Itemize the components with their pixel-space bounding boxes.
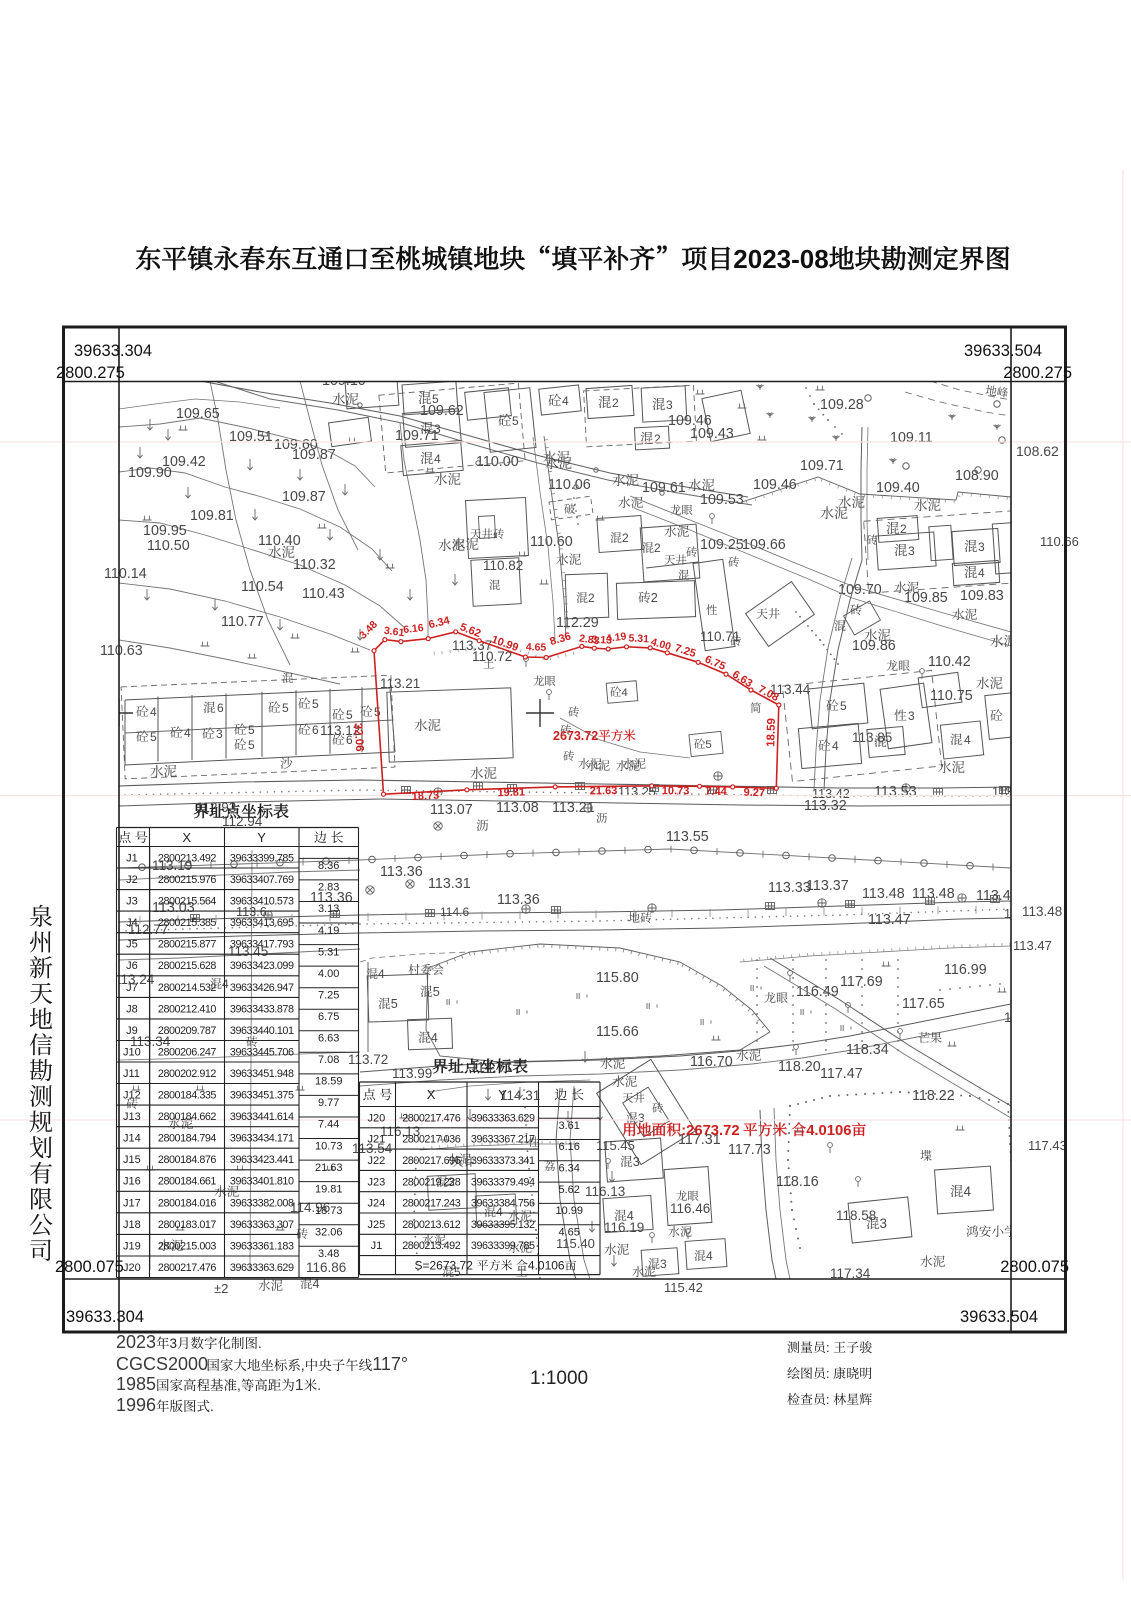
svg-text:113.36: 113.36 bbox=[497, 892, 540, 908]
svg-text:4: 4 bbox=[222, 977, 229, 991]
svg-text:18.59: 18.59 bbox=[765, 718, 778, 747]
svg-text:4: 4 bbox=[978, 566, 985, 580]
svg-text:J9: J9 bbox=[126, 1025, 138, 1037]
svg-text:39633363.629: 39633363.629 bbox=[230, 1262, 294, 1274]
svg-text:4: 4 bbox=[706, 1249, 713, 1263]
svg-text:4: 4 bbox=[964, 1184, 972, 1199]
svg-text:113.31: 113.31 bbox=[428, 876, 471, 892]
svg-text:115.66: 115.66 bbox=[596, 1024, 639, 1040]
svg-text:7.44: 7.44 bbox=[318, 1119, 339, 1131]
svg-text:110.63: 110.63 bbox=[100, 643, 143, 659]
svg-text:110.77: 110.77 bbox=[221, 614, 264, 630]
svg-text:4.0106: 4.0106 bbox=[528, 1259, 565, 1273]
svg-text:32.06: 32.06 bbox=[315, 1227, 343, 1239]
svg-text:J18: J18 bbox=[123, 1219, 141, 1231]
svg-text:10.73: 10.73 bbox=[662, 785, 690, 797]
svg-text:5: 5 bbox=[512, 414, 519, 428]
svg-text:2800183.017: 2800183.017 bbox=[158, 1219, 217, 1231]
svg-text:Y: Y bbox=[257, 830, 266, 845]
svg-text:117.47: 117.47 bbox=[820, 1066, 863, 1082]
svg-text:,: , bbox=[237, 1378, 241, 1393]
svg-text:3.61: 3.61 bbox=[559, 1120, 580, 1132]
svg-text:5: 5 bbox=[391, 997, 398, 1011]
svg-text:2800184.661: 2800184.661 bbox=[158, 1176, 217, 1188]
svg-text:39633407.769: 39633407.769 bbox=[230, 874, 294, 886]
svg-text:J4: J4 bbox=[126, 917, 138, 929]
svg-text:4: 4 bbox=[964, 733, 971, 747]
svg-text:3: 3 bbox=[216, 727, 223, 741]
svg-text:39633440.101: 39633440.101 bbox=[230, 1025, 294, 1037]
svg-text:21.63: 21.63 bbox=[590, 785, 618, 797]
svg-text:2800184.335: 2800184.335 bbox=[158, 1090, 217, 1102]
svg-text:39633423.441: 39633423.441 bbox=[230, 1154, 294, 1166]
svg-text::2673.72: :2673.72 bbox=[681, 1123, 739, 1139]
svg-text:110.60: 110.60 bbox=[530, 534, 573, 550]
svg-text:4.65: 4.65 bbox=[559, 1226, 580, 1238]
svg-text:2800213.612: 2800213.612 bbox=[402, 1219, 461, 1231]
svg-text:113.07: 113.07 bbox=[430, 802, 473, 818]
svg-text:J19: J19 bbox=[123, 1240, 141, 1252]
svg-text:109.66: 109.66 bbox=[742, 537, 786, 553]
svg-text:39633.504: 39633.504 bbox=[964, 342, 1042, 360]
svg-text:4: 4 bbox=[150, 705, 157, 719]
svg-text:110.75: 110.75 bbox=[930, 688, 973, 704]
svg-text:2800215.385: 2800215.385 bbox=[158, 917, 217, 929]
svg-text:39633433.878: 39633433.878 bbox=[230, 1003, 294, 1015]
svg-text:117°: 117° bbox=[372, 1354, 408, 1374]
svg-text:6.16: 6.16 bbox=[403, 622, 425, 636]
svg-text:2800217.696: 2800217.696 bbox=[402, 1155, 461, 1167]
svg-text:2800184.876: 2800184.876 bbox=[158, 1154, 217, 1166]
svg-text:J21: J21 bbox=[368, 1134, 386, 1146]
svg-text:6.75: 6.75 bbox=[318, 1011, 339, 1023]
svg-text:2800202.912: 2800202.912 bbox=[158, 1068, 217, 1080]
svg-text:1985: 1985 bbox=[116, 1374, 156, 1394]
svg-text:J6: J6 bbox=[126, 960, 138, 972]
svg-text:109.28: 109.28 bbox=[820, 397, 864, 413]
svg-text:39633367.217: 39633367.217 bbox=[471, 1134, 535, 1146]
svg-text:2800217.476: 2800217.476 bbox=[158, 1262, 217, 1274]
svg-text:113.48: 113.48 bbox=[1022, 904, 1062, 919]
svg-text:.: . bbox=[210, 1399, 214, 1414]
svg-text:2673.72: 2673.72 bbox=[553, 729, 598, 743]
svg-text:10.99: 10.99 bbox=[556, 1205, 584, 1217]
svg-text:39633413.695: 39633413.695 bbox=[230, 917, 294, 929]
svg-text:113.47: 113.47 bbox=[1013, 938, 1052, 953]
svg-text:113.32: 113.32 bbox=[804, 798, 847, 814]
svg-text:5: 5 bbox=[312, 697, 319, 711]
svg-text:2: 2 bbox=[654, 541, 661, 555]
svg-text::: : bbox=[826, 1366, 830, 1381]
svg-text:39633434.171: 39633434.171 bbox=[230, 1133, 294, 1145]
svg-text:113.37: 113.37 bbox=[806, 878, 849, 894]
svg-text:3: 3 bbox=[660, 1257, 667, 1271]
svg-text:39633451.948: 39633451.948 bbox=[230, 1068, 294, 1080]
svg-text:4.65: 4.65 bbox=[526, 641, 547, 653]
svg-text:113.72: 113.72 bbox=[348, 1052, 388, 1067]
svg-text:J11: J11 bbox=[123, 1068, 140, 1080]
svg-text:2800213.492: 2800213.492 bbox=[402, 1240, 461, 1252]
svg-text:X: X bbox=[182, 830, 191, 845]
svg-text:5: 5 bbox=[433, 985, 440, 999]
svg-text:J20: J20 bbox=[123, 1262, 141, 1274]
svg-text:39633417.793: 39633417.793 bbox=[230, 939, 294, 951]
svg-text::: : bbox=[826, 1340, 830, 1355]
svg-text:118.20: 118.20 bbox=[778, 1059, 821, 1075]
svg-text:3: 3 bbox=[170, 1336, 178, 1351]
svg-text:110.66: 110.66 bbox=[1040, 534, 1079, 549]
svg-text:2: 2 bbox=[588, 591, 595, 605]
svg-text:J1: J1 bbox=[126, 853, 138, 865]
svg-text:5: 5 bbox=[282, 701, 289, 715]
svg-text:39633426.947: 39633426.947 bbox=[230, 982, 294, 994]
svg-text:9.27: 9.27 bbox=[743, 787, 765, 800]
svg-text:3: 3 bbox=[978, 540, 985, 554]
svg-text:J22: J22 bbox=[368, 1155, 386, 1167]
svg-text:116.4: 116.4 bbox=[1004, 1010, 1037, 1025]
svg-text:5: 5 bbox=[346, 708, 353, 722]
svg-text:J2: J2 bbox=[126, 874, 138, 886]
svg-text:5: 5 bbox=[248, 723, 255, 737]
svg-text:115.42: 115.42 bbox=[664, 1280, 703, 1295]
svg-text:1996: 1996 bbox=[116, 1395, 156, 1415]
svg-text:3: 3 bbox=[880, 1216, 888, 1231]
svg-text:J25: J25 bbox=[368, 1219, 386, 1231]
svg-text:114.6: 114.6 bbox=[440, 905, 469, 919]
svg-text:113.36: 113.36 bbox=[380, 864, 423, 880]
svg-text:J15: J15 bbox=[123, 1154, 141, 1166]
svg-text:7.08: 7.08 bbox=[318, 1054, 339, 1066]
svg-text:109.95: 109.95 bbox=[143, 523, 187, 539]
svg-text:110.14: 110.14 bbox=[104, 566, 147, 582]
svg-text:5: 5 bbox=[705, 739, 711, 751]
svg-text:J14: J14 bbox=[123, 1133, 141, 1145]
svg-text:110.32: 110.32 bbox=[293, 557, 336, 573]
svg-text:9.77: 9.77 bbox=[318, 1097, 339, 1109]
svg-text::: : bbox=[826, 1392, 830, 1407]
svg-text:4.00: 4.00 bbox=[649, 636, 672, 653]
svg-text:5: 5 bbox=[248, 738, 255, 752]
svg-text:109.46: 109.46 bbox=[753, 477, 797, 493]
svg-text:6.63: 6.63 bbox=[730, 669, 755, 691]
svg-text:32.06: 32.06 bbox=[351, 723, 365, 753]
svg-text:116.70: 116.70 bbox=[690, 1054, 733, 1070]
svg-text:19.81: 19.81 bbox=[315, 1183, 343, 1195]
svg-text:18.59: 18.59 bbox=[315, 1076, 343, 1088]
svg-text:2800215.976: 2800215.976 bbox=[158, 874, 217, 886]
svg-text:4.0106: 4.0106 bbox=[806, 1123, 851, 1139]
svg-text:109.90: 109.90 bbox=[128, 465, 172, 481]
svg-text:2800217.036: 2800217.036 bbox=[402, 1134, 461, 1146]
svg-text:109.40: 109.40 bbox=[876, 480, 920, 496]
svg-text:109.60: 109.60 bbox=[274, 437, 318, 453]
svg-text:112.29: 112.29 bbox=[556, 615, 599, 631]
svg-text:39633382.008: 39633382.008 bbox=[230, 1197, 294, 1209]
svg-text:3: 3 bbox=[908, 544, 915, 558]
svg-text:118.58: 118.58 bbox=[836, 1208, 876, 1223]
svg-text:113.08: 113.08 bbox=[496, 800, 539, 816]
svg-text:J12: J12 bbox=[123, 1090, 141, 1102]
svg-text:2800215.564: 2800215.564 bbox=[158, 896, 217, 908]
svg-text:116.13: 116.13 bbox=[585, 1184, 625, 1199]
svg-text:113.55: 113.55 bbox=[666, 829, 709, 845]
svg-text:J20: J20 bbox=[368, 1112, 386, 1124]
svg-text:5: 5 bbox=[840, 699, 847, 713]
svg-text:116.99: 116.99 bbox=[944, 962, 987, 978]
svg-text:110.43: 110.43 bbox=[302, 586, 345, 602]
svg-text:2800184.794: 2800184.794 bbox=[158, 1133, 217, 1145]
svg-text:6.16: 6.16 bbox=[559, 1141, 580, 1153]
svg-text:2800215.003: 2800215.003 bbox=[158, 1240, 217, 1252]
svg-text:5.31: 5.31 bbox=[318, 946, 339, 958]
svg-text:8.36: 8.36 bbox=[549, 630, 573, 648]
svg-text:108.62: 108.62 bbox=[1016, 443, 1059, 459]
svg-text:7.25: 7.25 bbox=[673, 642, 697, 660]
svg-text:110.82: 110.82 bbox=[483, 558, 523, 573]
svg-text:2800.275: 2800.275 bbox=[56, 364, 125, 382]
svg-text:J5: J5 bbox=[126, 939, 138, 951]
svg-text:2800217.243: 2800217.243 bbox=[402, 1198, 461, 1210]
svg-text:109.70: 109.70 bbox=[838, 582, 882, 598]
svg-text:39633423.099: 39633423.099 bbox=[230, 960, 294, 972]
svg-text:2800.075: 2800.075 bbox=[55, 1258, 124, 1276]
svg-text:2800206.247: 2800206.247 bbox=[158, 1046, 217, 1058]
svg-text:J10: J10 bbox=[123, 1046, 141, 1058]
svg-text:2.83: 2.83 bbox=[318, 882, 339, 894]
svg-text:2800184.662: 2800184.662 bbox=[158, 1111, 217, 1123]
svg-text:J17: J17 bbox=[123, 1197, 141, 1209]
svg-text:39633451.375: 39633451.375 bbox=[230, 1090, 294, 1102]
svg-text:.: . bbox=[317, 1378, 321, 1393]
svg-text:7.44: 7.44 bbox=[705, 786, 728, 798]
svg-text:1:1000: 1:1000 bbox=[530, 1368, 588, 1389]
svg-text:4: 4 bbox=[434, 452, 441, 466]
svg-text:39633399.785: 39633399.785 bbox=[230, 853, 294, 865]
svg-text:J16: J16 bbox=[123, 1176, 141, 1188]
svg-text:4: 4 bbox=[621, 687, 627, 699]
svg-text:J8: J8 bbox=[126, 1003, 138, 1015]
svg-text:39633.504: 39633.504 bbox=[960, 1308, 1038, 1326]
svg-text:118.34: 118.34 bbox=[846, 1042, 889, 1058]
svg-text:2800215.877: 2800215.877 bbox=[158, 939, 217, 951]
svg-text:113.48: 113.48 bbox=[862, 886, 905, 902]
svg-text:2800215.628: 2800215.628 bbox=[158, 960, 217, 972]
svg-text:116.86: 116.86 bbox=[306, 1260, 346, 1275]
svg-text:CGCS2000: CGCS2000 bbox=[116, 1354, 208, 1374]
svg-text:113.33: 113.33 bbox=[768, 880, 811, 896]
svg-text:6.63: 6.63 bbox=[318, 1033, 339, 1045]
svg-text:J24: J24 bbox=[368, 1198, 386, 1210]
svg-text:109.86: 109.86 bbox=[852, 638, 896, 654]
svg-text:109.53: 109.53 bbox=[700, 492, 744, 508]
svg-text:115.80: 115.80 bbox=[596, 970, 639, 986]
svg-text:39633.304: 39633.304 bbox=[74, 342, 152, 360]
svg-text:2800209.787: 2800209.787 bbox=[158, 1025, 217, 1037]
svg-text:113.53: 113.53 bbox=[874, 784, 917, 800]
svg-text:39633395.132: 39633395.132 bbox=[471, 1219, 535, 1231]
svg-text:2023-08: 2023-08 bbox=[733, 244, 828, 274]
svg-text:3: 3 bbox=[633, 1155, 640, 1169]
svg-text:108.90: 108.90 bbox=[955, 468, 999, 484]
svg-text:±2: ±2 bbox=[214, 1281, 228, 1296]
svg-text:110.06: 110.06 bbox=[548, 477, 591, 493]
svg-text:110.40: 110.40 bbox=[258, 533, 301, 549]
svg-text:3: 3 bbox=[908, 709, 915, 723]
svg-text:Y: Y bbox=[498, 1087, 507, 1102]
svg-text:4: 4 bbox=[184, 726, 191, 740]
svg-text:4: 4 bbox=[431, 1031, 438, 1045]
svg-text:113.99: 113.99 bbox=[392, 1066, 432, 1081]
svg-text:117.43: 117.43 bbox=[1028, 1138, 1067, 1153]
svg-text:116.19: 116.19 bbox=[604, 1220, 644, 1235]
svg-text:10.73: 10.73 bbox=[315, 1140, 343, 1152]
svg-text:3.48: 3.48 bbox=[318, 1248, 339, 1260]
svg-text:3.13: 3.13 bbox=[318, 903, 339, 915]
svg-text:7.25: 7.25 bbox=[318, 989, 339, 1001]
svg-text:X: X bbox=[427, 1087, 436, 1102]
svg-text:3.61: 3.61 bbox=[383, 625, 405, 639]
svg-text:3.48: 3.48 bbox=[357, 618, 380, 641]
svg-text:109.83: 109.83 bbox=[960, 588, 1004, 604]
svg-text:J3: J3 bbox=[126, 896, 138, 908]
svg-text:39633.304: 39633.304 bbox=[66, 1308, 144, 1326]
svg-text:2: 2 bbox=[622, 531, 629, 545]
svg-text:8.36: 8.36 bbox=[318, 860, 339, 872]
svg-text:.: . bbox=[258, 1336, 262, 1351]
svg-text:,: , bbox=[301, 1358, 305, 1373]
svg-text:118.16: 118.16 bbox=[776, 1174, 819, 1190]
svg-text:109.71: 109.71 bbox=[800, 458, 844, 474]
svg-text:4.19: 4.19 bbox=[318, 925, 339, 937]
svg-text:2800212.410: 2800212.410 bbox=[158, 1003, 217, 1015]
svg-text:J23: J23 bbox=[368, 1176, 386, 1188]
svg-text:110.54: 110.54 bbox=[241, 579, 284, 595]
svg-text:J1: J1 bbox=[371, 1240, 383, 1252]
svg-text:2: 2 bbox=[612, 396, 619, 410]
svg-text:5.62: 5.62 bbox=[559, 1184, 580, 1196]
svg-text:113.21: 113.21 bbox=[380, 676, 420, 691]
svg-text:4: 4 bbox=[562, 394, 569, 408]
svg-text:6: 6 bbox=[217, 701, 224, 715]
svg-text:39633379.494: 39633379.494 bbox=[471, 1176, 535, 1188]
svg-text:5: 5 bbox=[432, 392, 439, 406]
svg-text:109.81: 109.81 bbox=[190, 508, 234, 524]
svg-text:J7: J7 bbox=[126, 982, 138, 994]
svg-text:4: 4 bbox=[378, 967, 385, 981]
svg-text:110.50: 110.50 bbox=[147, 538, 190, 554]
svg-text:39633384.756: 39633384.756 bbox=[471, 1198, 535, 1210]
svg-text:4: 4 bbox=[832, 739, 839, 753]
svg-text:113.48: 113.48 bbox=[912, 886, 955, 902]
svg-text:6: 6 bbox=[312, 723, 319, 737]
svg-text:39633410.573: 39633410.573 bbox=[230, 896, 294, 908]
svg-text:1: 1 bbox=[295, 1377, 304, 1394]
svg-text:109.87: 109.87 bbox=[282, 489, 326, 505]
svg-text:6.34: 6.34 bbox=[427, 614, 452, 631]
svg-text:110.42: 110.42 bbox=[928, 654, 971, 670]
svg-text:2800.075: 2800.075 bbox=[1000, 1258, 1069, 1276]
svg-text:2800213.492: 2800213.492 bbox=[158, 853, 217, 865]
svg-text:109.11: 109.11 bbox=[890, 430, 933, 446]
svg-text:21.63: 21.63 bbox=[315, 1162, 343, 1174]
svg-text:39633373.341: 39633373.341 bbox=[471, 1155, 535, 1167]
svg-text:18.73: 18.73 bbox=[315, 1205, 343, 1217]
svg-text:39633399.785: 39633399.785 bbox=[471, 1240, 535, 1252]
svg-text:S=2673.72: S=2673.72 bbox=[415, 1259, 474, 1273]
svg-text:39633441.614: 39633441.614 bbox=[230, 1111, 294, 1123]
svg-text:113.47: 113.47 bbox=[868, 912, 911, 928]
svg-text:110.71: 110.71 bbox=[700, 629, 740, 644]
svg-text:39633401.810: 39633401.810 bbox=[230, 1176, 294, 1188]
svg-text:118.22: 118.22 bbox=[912, 1088, 955, 1104]
svg-text:2800219.228: 2800219.228 bbox=[402, 1176, 461, 1188]
svg-text:2: 2 bbox=[651, 591, 658, 605]
svg-text:2800217.476: 2800217.476 bbox=[402, 1112, 461, 1124]
svg-text:117.65: 117.65 bbox=[902, 996, 945, 1012]
svg-text:2800214.532: 2800214.532 bbox=[158, 982, 217, 994]
svg-text:4.19: 4.19 bbox=[605, 631, 627, 645]
svg-text:116.46: 116.46 bbox=[670, 1201, 710, 1216]
svg-text:109.25: 109.25 bbox=[700, 537, 744, 553]
svg-text:113.47: 113.47 bbox=[976, 888, 1019, 904]
svg-text:39633363.629: 39633363.629 bbox=[471, 1112, 535, 1124]
svg-text:4.00: 4.00 bbox=[318, 968, 339, 980]
svg-text:3: 3 bbox=[666, 398, 673, 412]
svg-text:J13: J13 bbox=[123, 1111, 141, 1123]
svg-text:2800184.016: 2800184.016 bbox=[158, 1197, 217, 1209]
svg-text:39633361.183: 39633361.183 bbox=[230, 1240, 294, 1252]
svg-text:3: 3 bbox=[434, 422, 441, 436]
svg-text:39633363.307: 39633363.307 bbox=[230, 1219, 294, 1231]
svg-text:5.31: 5.31 bbox=[628, 632, 649, 645]
svg-text:2023: 2023 bbox=[116, 1332, 156, 1352]
svg-text:115.45: 115.45 bbox=[596, 1138, 635, 1153]
svg-text:109.65: 109.65 bbox=[176, 406, 220, 422]
svg-text:117.73: 117.73 bbox=[728, 1142, 771, 1158]
svg-text:2800.275: 2800.275 bbox=[1003, 364, 1072, 382]
svg-text:5: 5 bbox=[150, 730, 157, 744]
svg-text:19.81: 19.81 bbox=[497, 786, 525, 799]
svg-text:113.4: 113.4 bbox=[992, 785, 1023, 799]
svg-text:18.73: 18.73 bbox=[411, 790, 439, 803]
svg-text:39633445.706: 39633445.706 bbox=[230, 1046, 294, 1058]
svg-text:6.34: 6.34 bbox=[559, 1163, 580, 1175]
svg-text:2: 2 bbox=[654, 432, 661, 446]
